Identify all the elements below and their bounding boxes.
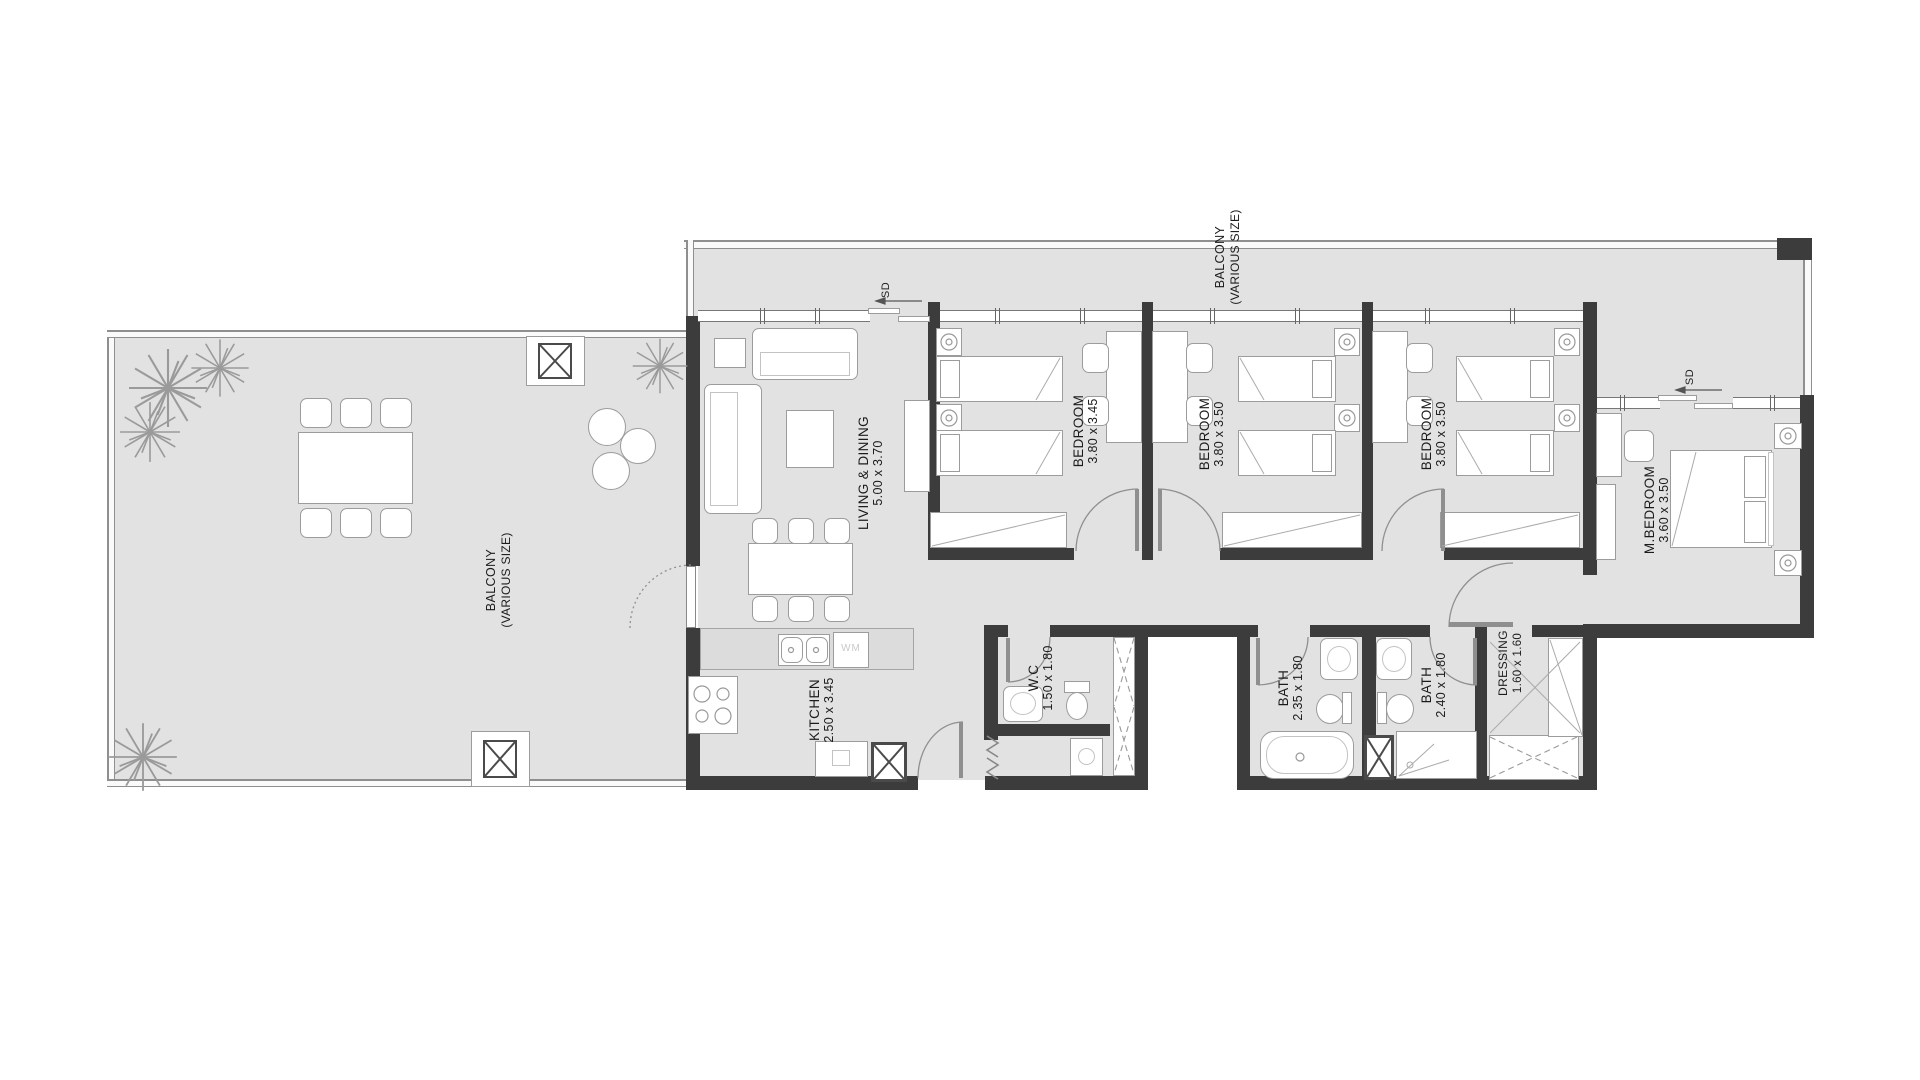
label-kitchen: KITCHEN 2.50 x 3.45 [807,677,837,742]
wall-bedroom3-master-upper [1583,302,1597,575]
desk-chair [1082,343,1109,373]
bath1-door-leaf [1256,638,1260,685]
wardrobe [1440,512,1580,548]
bath2-toilet-bowl [1386,694,1414,724]
bath2-sink-bowl [1382,646,1406,672]
vestibule-door-leaf [1449,622,1513,627]
label-bedroom1: BEDROOM 3.80 x 3.45 [1071,395,1101,468]
nightstand [1774,423,1802,449]
window-bedroom3 [1373,310,1583,322]
wall-bedroom1-bottom [928,548,1074,560]
wall-wc-top-a [984,625,1008,637]
wc-door-leaf [1006,638,1010,682]
washing-machine: WM [833,632,869,668]
nightstand [936,404,962,432]
wall-left-upper [686,316,700,566]
label-balcony-top: BALCONY (VARIOUS SIZE) [1213,209,1243,304]
parapet-top [684,240,1812,249]
balcony-master-floor [1590,324,1812,400]
wall-recess-right [1237,637,1250,790]
dining-chair [788,518,814,544]
label-dressing: DRESSING 1.60 x 1.60 [1496,630,1526,696]
window-tick [995,308,1000,324]
wall-bedroom3-bottom [1444,548,1583,560]
label-wc: W.C 1.50 x 1.80 [1026,645,1056,710]
fridge-inner [832,750,850,766]
window-master-a [1597,397,1660,409]
window-tick [1080,308,1085,324]
parapet-right [1803,240,1812,400]
balcony-door-leaf [686,566,696,628]
wall-dressing-right [1583,630,1597,780]
wall-master-right [1800,395,1814,638]
wardrobe [1222,512,1362,548]
desk [1372,331,1408,443]
wall-vestibule [1532,625,1583,637]
nightstand [1554,328,1580,356]
bath1-toilet-bowl [1316,694,1344,724]
nightstand [1554,404,1580,432]
sliding-door-master-panel [1694,403,1733,409]
dining-chair [752,518,778,544]
dining-table [748,543,853,595]
pillar-core [538,343,572,379]
stove [688,676,738,734]
side-sofa-seat [710,392,738,506]
bedroom3-door-leaf [1441,489,1445,551]
parapet-balcony-left [107,330,115,787]
side-table [714,338,746,368]
window-bedroom2 [1153,310,1362,322]
nightstand [936,328,962,356]
window-tick [760,308,765,324]
parapet-balcony-bottom [107,779,688,787]
coffee-table [786,410,834,468]
headboard [1768,452,1774,546]
window-tick [1295,308,1300,324]
bistro-table [620,428,656,464]
label-master-bedroom: M.BEDROOM 3.60 x 3.50 [1642,466,1672,554]
wall-bottom-wc [985,776,1148,790]
wall-recess-left [1135,625,1148,790]
wc-toilet-bowl [1066,692,1088,720]
window-master-b [1733,397,1800,409]
desk-chair [1624,430,1654,462]
desk [1596,413,1622,477]
balcony-chair [340,398,372,428]
wall-wc-left [984,625,998,740]
bedroom2-door-leaf [1158,489,1162,551]
desk [1106,331,1142,443]
balcony-chair [380,398,412,428]
label-sliding-door-living: SD [880,282,892,298]
desk [1152,331,1188,443]
balcony-chair [380,508,412,538]
nightstand [1334,404,1360,432]
entrance-door-leaf [959,722,963,778]
window-tick [1425,308,1430,324]
kitchen-sink-basin [781,637,803,663]
sliding-door-master-panel [1658,395,1697,401]
kitchen-sink-basin [806,637,828,663]
tall-cabinet [1113,637,1135,776]
balcony-table [298,432,413,504]
nightstand [1334,328,1360,356]
parapet-balcony-top [107,330,688,338]
bath1-toilet-tank [1342,692,1352,724]
parapet-unit-left-upper [686,240,694,318]
label-bedroom3: BEDROOM 3.80 x 3.50 [1419,398,1449,471]
dresser [1596,484,1616,560]
window-tick [1510,308,1515,324]
window-tick [1210,308,1215,324]
label-bath2: BATH 2.40 x 1.80 [1419,652,1449,717]
desk-chair [1406,343,1433,373]
label-bedroom2: BEDROOM 3.80 x 3.50 [1197,398,1227,471]
window-living [698,310,870,322]
entrance-recess [1148,637,1237,790]
laundry-washer-door [1078,748,1095,765]
service-shaft [871,742,907,782]
dressing-wardrobe-right [1548,638,1583,737]
bed-pillow [1744,456,1766,498]
wall-master-bottom [1583,624,1814,638]
pillar-core [483,740,517,778]
wall-wc-bottom [984,724,1110,736]
bedroom1-door-leaf [1135,489,1139,551]
dining-chair [788,596,814,622]
label-balcony-left: BALCONY (VARIOUS SIZE) [484,532,514,627]
corner-pillar [1777,238,1812,260]
window-tick [815,308,820,324]
wall-wc-top-b [1050,625,1258,637]
bed-pillow [940,360,960,398]
sofa-seat [760,352,850,376]
bathtub-inner [1266,736,1348,774]
bed-pillow [1744,501,1766,543]
balcony-chair [340,508,372,538]
bed-pillow [940,434,960,472]
sliding-door-living-panel [898,316,930,322]
shower [1396,731,1477,779]
wardrobe [930,512,1067,548]
label-bath1: BATH 2.35 x 1.80 [1276,655,1306,720]
dressing-wardrobe-bottom [1489,735,1579,780]
bed-pillow [1530,360,1550,398]
window-tick [1770,395,1775,411]
bath2-shaft [1364,735,1394,780]
window-tick [1620,395,1625,411]
dining-chair [824,518,850,544]
bed-pillow [1312,360,1332,398]
nightstand [1774,550,1802,576]
bath1-sink-bowl [1327,646,1351,672]
floor-plan: WM [0,0,1920,1080]
desk-chair [1186,343,1213,373]
bed-pillow [1312,434,1332,472]
dining-chair [824,596,850,622]
label-sliding-door-master: SD [1684,369,1696,385]
window-bedroom1 [940,310,1142,322]
label-living: LIVING & DINING 5.00 x 3.70 [856,416,886,530]
dining-chair [752,596,778,622]
balcony-chair [300,508,332,538]
balcony-chair [300,398,332,428]
bath2-door-leaf [1473,638,1477,685]
tv-unit [904,400,930,492]
washing-machine-label: WM [834,643,868,654]
wall-bedroom2-bottom [1220,548,1362,560]
sliding-door-living-panel [868,308,900,314]
bed-pillow [1530,434,1550,472]
